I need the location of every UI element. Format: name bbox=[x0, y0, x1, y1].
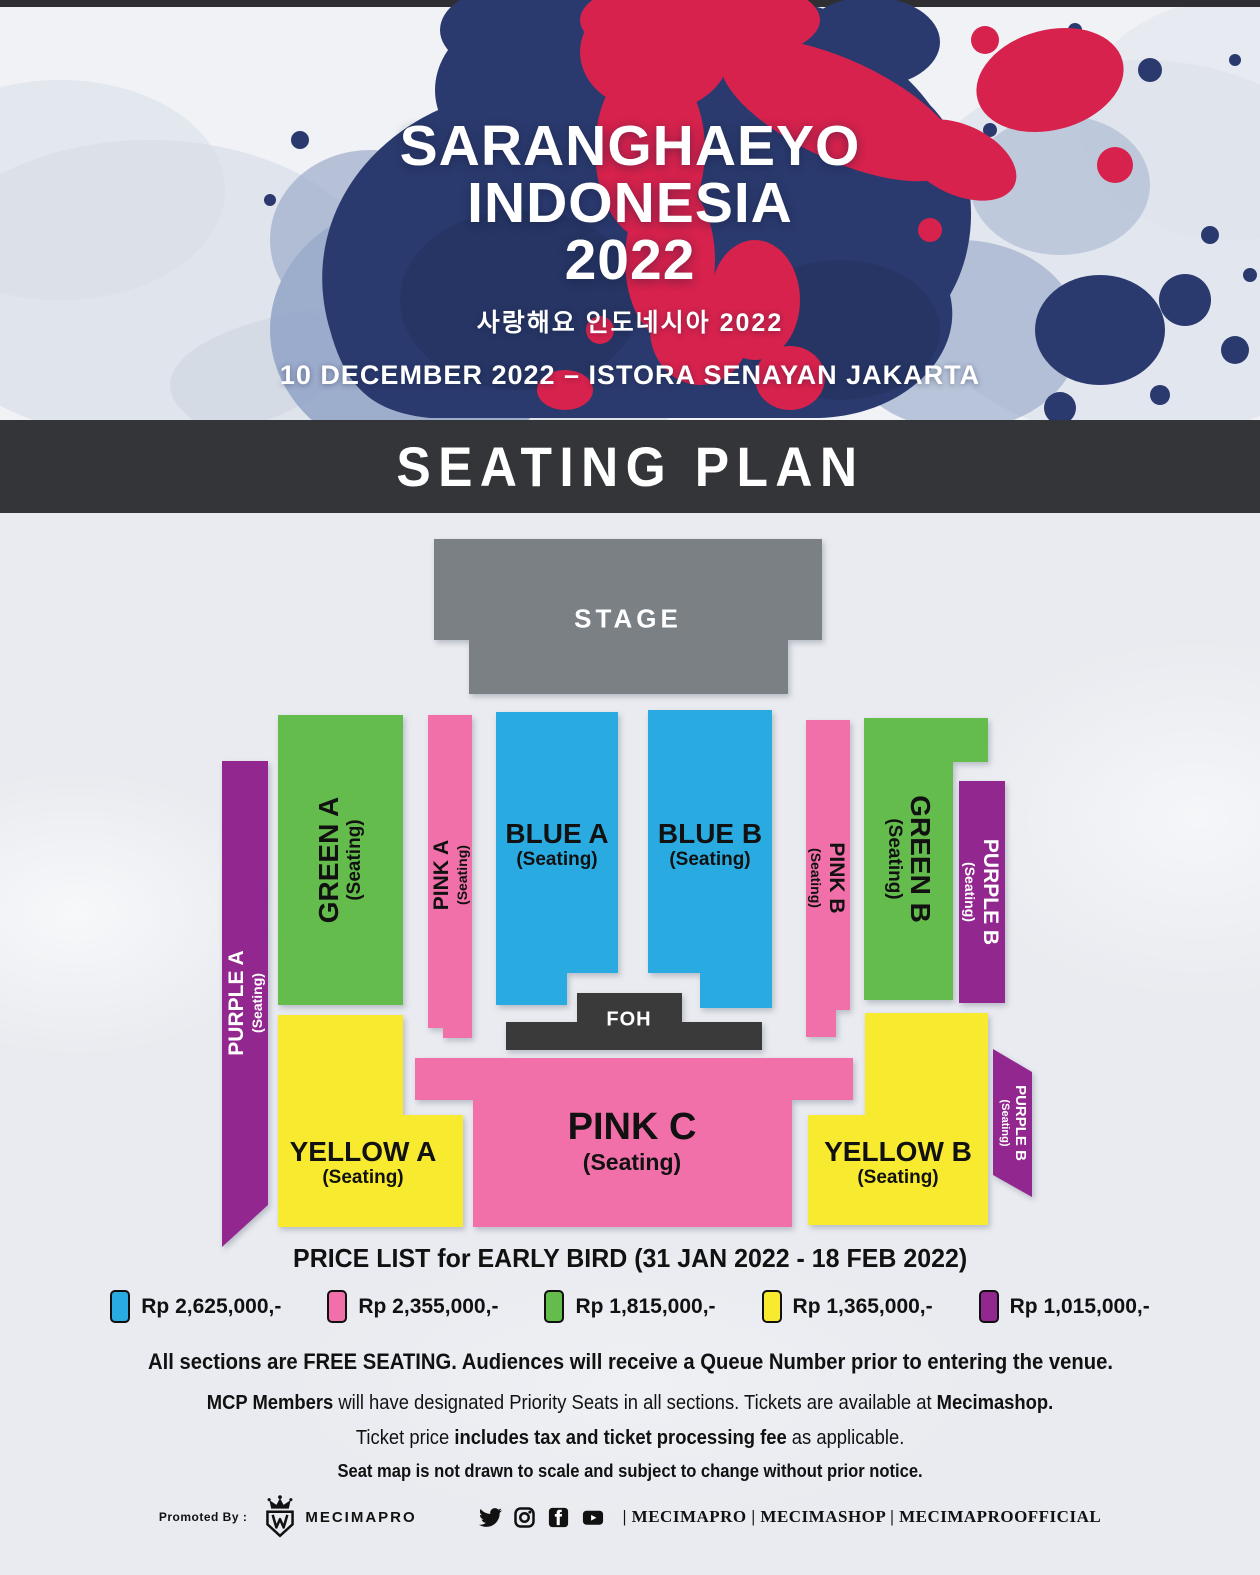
purple-swatch bbox=[979, 1290, 999, 1323]
event-title-line3: 2022 bbox=[0, 232, 1260, 289]
pink-swatch bbox=[327, 1290, 347, 1323]
youtube-icon bbox=[581, 1506, 605, 1529]
note-mcp-members: MCP Members will have designated Priorit… bbox=[0, 1392, 1260, 1415]
stage-label: STAGE bbox=[574, 604, 682, 635]
price-item-green: Rp 1,815,000,- bbox=[544, 1290, 715, 1323]
facebook-icon bbox=[547, 1506, 570, 1529]
section-purple-b-upper-label: PURPLE B(Seating) bbox=[929, 872, 1035, 912]
section-yellow-b-shape bbox=[808, 1013, 988, 1225]
note-free-seating: All sections are FREE SEATING. Audiences… bbox=[0, 1349, 1260, 1375]
poster: SARANGHAEYO INDONESIA 2022 사랑해요 인도네시아 20… bbox=[0, 0, 1260, 1575]
green-swatch bbox=[544, 1290, 564, 1323]
yellow-swatch bbox=[762, 1290, 782, 1323]
price-label: Rp 1,365,000,- bbox=[793, 1295, 933, 1319]
section-blue-b-label: BLUE B(Seating) bbox=[658, 818, 762, 872]
social-handles: | MECIMAPRO | MECIMASHOP | MECIMAPROOFFI… bbox=[623, 1507, 1102, 1527]
mecimapro-wordmark: MECIMAPRO bbox=[305, 1509, 416, 1526]
note-ticket-price: Ticket price includes tax and ticket pro… bbox=[0, 1427, 1260, 1450]
header-text: SARANGHAEYO INDONESIA 2022 사랑해요 인도네시아 20… bbox=[0, 118, 1260, 391]
mecimapro-logo: MECIMAPRO bbox=[259, 1494, 416, 1540]
mecimapro-crown-shield-icon bbox=[259, 1494, 301, 1540]
promoted-by-label: Promoted By : bbox=[159, 1510, 248, 1524]
event-title-korean: 사랑해요 인도네시아 2022 bbox=[0, 303, 1260, 339]
social-icons bbox=[479, 1506, 605, 1529]
section-yellow-b-label: YELLOW B(Seating) bbox=[824, 1136, 972, 1190]
price-item-purple: Rp 1,015,000,- bbox=[979, 1290, 1150, 1323]
section-purple-a-label: PURPLE A(Seating) bbox=[192, 983, 297, 1023]
event-title-line2: INDONESIA bbox=[0, 175, 1260, 232]
seating-plan-banner: SEATING PLAN bbox=[0, 420, 1260, 513]
price-list-title: PRICE LIST for EARLY BIRD (31 JAN 2022 -… bbox=[0, 1243, 1260, 1274]
price-label: Rp 2,625,000,- bbox=[141, 1295, 281, 1319]
seating-plan-banner-label: SEATING PLAN bbox=[396, 434, 864, 499]
event-date-venue: 10 DECEMBER 2022 – ISTORA SENAYAN JAKART… bbox=[0, 360, 1260, 391]
twitter-icon bbox=[479, 1506, 502, 1529]
section-purple-b-lower-label: PURPLE B(Seating) bbox=[975, 1108, 1051, 1138]
footer: Promoted By : MECIMAPRO bbox=[0, 1494, 1260, 1540]
price-item-pink: Rp 2,355,000,- bbox=[327, 1290, 498, 1323]
price-item-yellow: Rp 1,365,000,- bbox=[762, 1290, 933, 1323]
note-disclaimer: Seat map is not drawn to scale and subje… bbox=[0, 1461, 1260, 1482]
instagram-icon bbox=[513, 1506, 536, 1529]
section-yellow-a-label: YELLOW A(Seating) bbox=[290, 1136, 437, 1190]
price-item-blue: Rp 2,625,000,- bbox=[110, 1290, 281, 1323]
foh-label: FOH bbox=[606, 1009, 651, 1032]
price-label: Rp 2,355,000,- bbox=[358, 1295, 498, 1319]
section-blue-a-label: BLUE A(Seating) bbox=[505, 818, 608, 872]
price-label: Rp 1,015,000,- bbox=[1010, 1295, 1150, 1319]
section-yellow-a-shape bbox=[278, 1015, 463, 1227]
header: SARANGHAEYO INDONESIA 2022 사랑해요 인도네시아 20… bbox=[0, 0, 1260, 420]
price-list: Rp 2,625,000,- Rp 2,355,000,- Rp 1,815,0… bbox=[0, 1290, 1260, 1323]
section-pink-a-label: PINK A(Seating) bbox=[415, 855, 485, 895]
section-green-a-label: GREEN A(Seating) bbox=[277, 833, 404, 887]
seating-map: STAGE FOH GREEN A(Seating) PINK A(Seatin… bbox=[0, 513, 1260, 1280]
blue-swatch bbox=[110, 1290, 130, 1323]
section-pink-c-label: PINK C(Seating) bbox=[568, 1106, 697, 1176]
event-title-line1: SARANGHAEYO bbox=[0, 118, 1260, 175]
price-label: Rp 1,815,000,- bbox=[575, 1295, 715, 1319]
